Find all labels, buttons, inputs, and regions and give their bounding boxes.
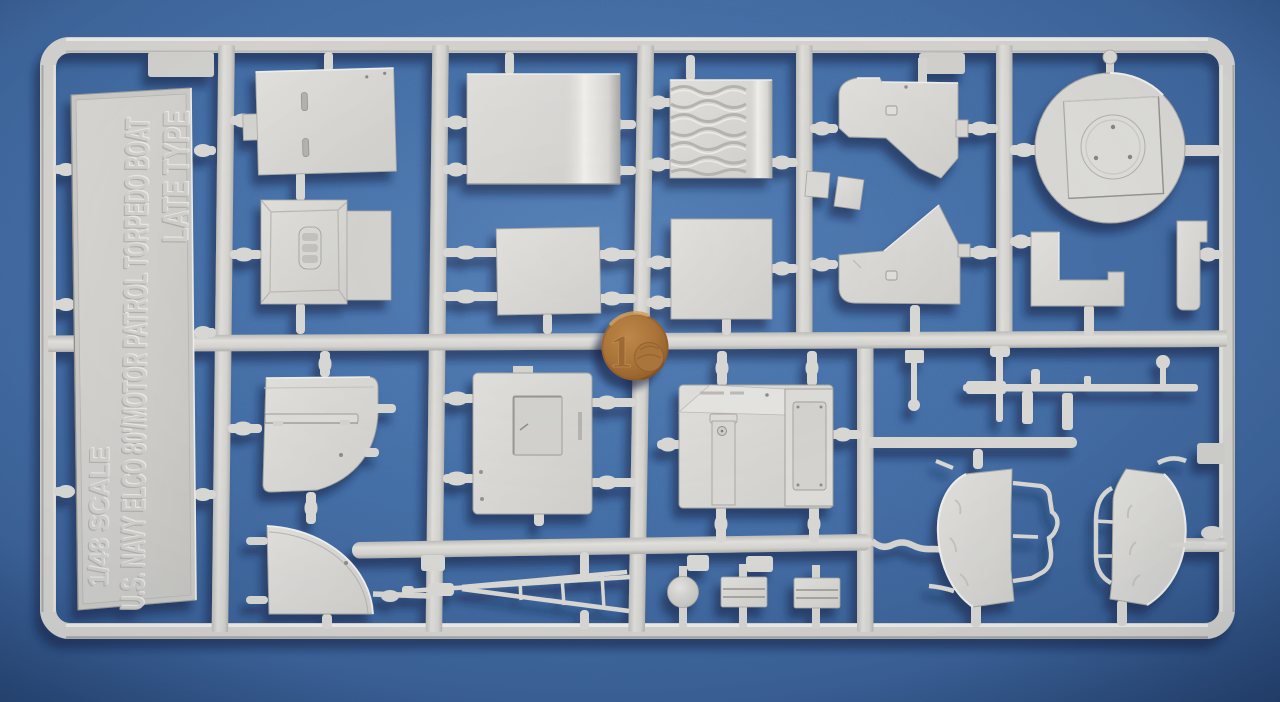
svg-text:1: 1 <box>609 326 633 378</box>
